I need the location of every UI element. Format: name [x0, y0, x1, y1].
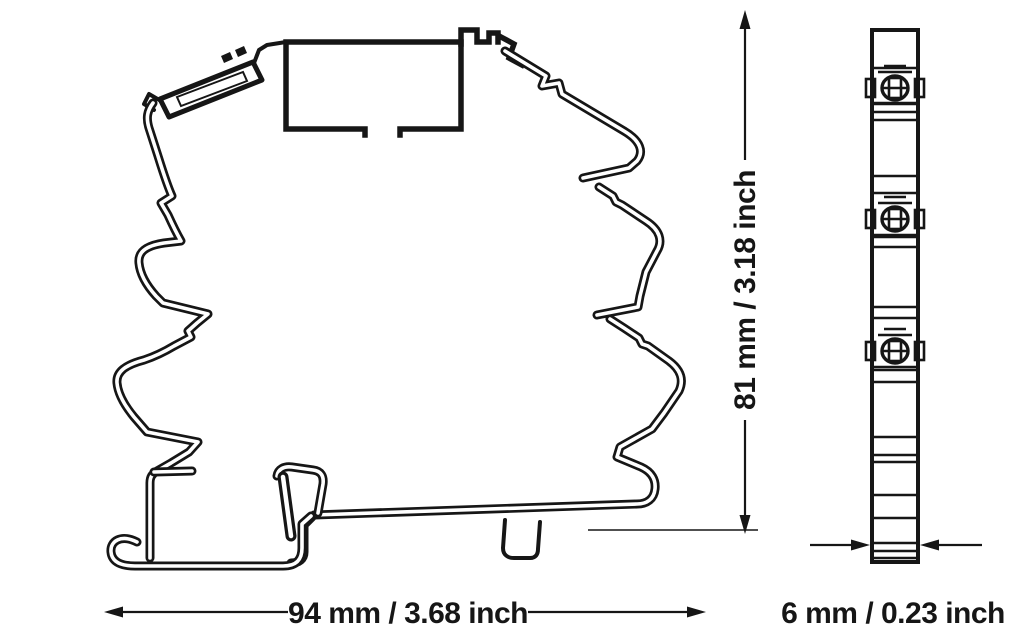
height-dimension-label: 81 mm / 3.18 inch — [729, 170, 762, 410]
arrow-down-icon — [740, 515, 751, 534]
left-housing-wall — [117, 103, 208, 558]
arrow-right-icon — [851, 540, 870, 551]
width-dimension-label: 94 mm / 3.68 inch — [288, 597, 528, 630]
screw-terminal — [866, 329, 924, 367]
relay-body-outline — [286, 42, 461, 135]
depth-dimension: 6 mm / 0.23 inch — [781, 540, 1005, 631]
screw-terminal — [866, 197, 924, 235]
rail-hook — [503, 520, 540, 558]
arrow-up-icon — [740, 10, 751, 29]
width-dimension: 94 mm / 3.68 inch — [104, 597, 706, 630]
latch-lever — [144, 42, 286, 117]
dimension-drawing: 81 mm / 3.18 inch 94 mm / 3.68 inch 6 mm… — [0, 0, 1024, 642]
arrow-left-icon — [104, 607, 123, 618]
arrow-left-icon — [920, 540, 939, 551]
front-view-segment-lines — [872, 68, 918, 558]
side-view — [111, 30, 681, 566]
din-rail-foot — [111, 467, 323, 566]
front-view — [866, 30, 924, 562]
depth-dimension-label: 6 mm / 0.23 inch — [781, 597, 1005, 630]
drawing-canvas: 81 mm / 3.18 inch 94 mm / 3.68 inch 6 mm… — [0, 0, 1024, 642]
screw-terminal — [866, 66, 924, 104]
arrow-right-icon — [687, 607, 706, 618]
